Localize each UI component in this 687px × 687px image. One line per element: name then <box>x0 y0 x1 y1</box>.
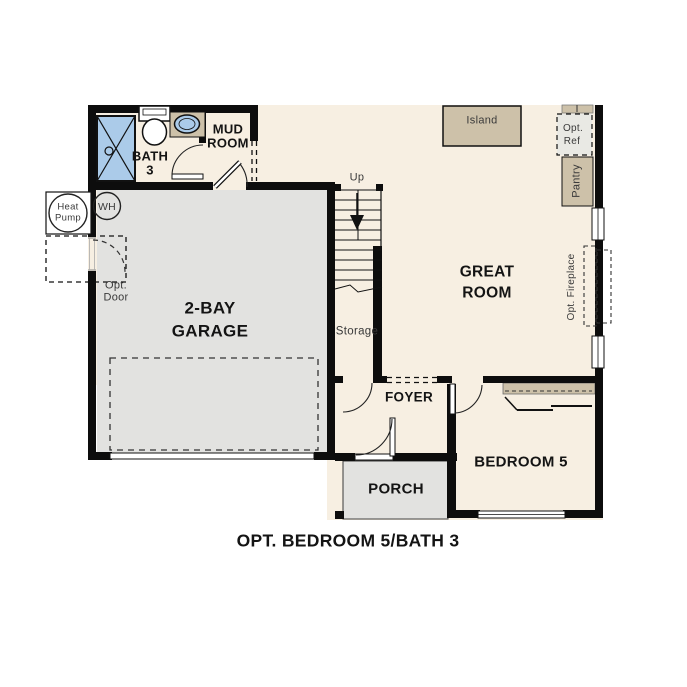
opt-fireplace-label: Opt. Fireplace <box>567 253 577 320</box>
wall-porch-corner <box>335 511 344 519</box>
wall-garage-bottom-left <box>88 452 112 460</box>
wall-storage-right <box>373 246 382 376</box>
wall-mudroom-right <box>250 105 258 141</box>
wall-garage-right <box>327 190 335 382</box>
stairs-up-label: Up <box>350 173 365 184</box>
wall-greatroom-bottom <box>483 376 603 383</box>
wall-foyer-bottom-left <box>335 453 355 461</box>
bedroom5-label: BEDROOM 5 <box>474 455 568 470</box>
wall-jamb-storage-right <box>373 376 387 383</box>
front-door-leaf <box>390 418 395 456</box>
water-heater-label: WH <box>98 202 116 213</box>
opt-door-label-2: Door <box>103 293 128 304</box>
floor-plan-drawing <box>0 0 687 687</box>
wall-right-upper <box>595 105 603 210</box>
bath3-label: BATH <box>132 150 168 163</box>
garage-label-2: GARAGE <box>172 323 248 340</box>
porch-label: PORCH <box>368 482 424 497</box>
pantry-label: Pantry <box>572 164 583 198</box>
toilet-bowl <box>143 119 167 145</box>
mudroom-label-2: ROOM <box>207 137 249 150</box>
opt-door-label: Opt. <box>105 281 127 292</box>
storage-label: Storage <box>336 326 378 338</box>
mudroom-label: MUD <box>213 123 244 136</box>
heat-pump-label-2: Pump <box>55 213 81 223</box>
island-label: Island <box>466 116 497 127</box>
foyer-label: FOYER <box>385 390 433 404</box>
shower-drain-icon <box>105 147 113 155</box>
bath3-door-leaf <box>172 174 203 179</box>
wall-right-lower <box>595 368 603 518</box>
garage-door <box>110 453 314 459</box>
bedroom5-door-leaf <box>450 384 455 414</box>
floor-plan: BATH 3 MUD ROOM Heat Pump WH Opt. Door 2… <box>0 0 687 687</box>
bath3-label-2: 3 <box>146 164 154 177</box>
great-room-label-2: ROOM <box>462 285 511 301</box>
plan-caption: OPT. BEDROOM 5/BATH 3 <box>237 532 460 550</box>
wall-bedroom-bottom-left <box>447 510 480 518</box>
heat-pump-label: Heat <box>57 202 78 212</box>
wall-jamb-storage-left <box>335 376 343 383</box>
opt-ref-label-2: Ref <box>564 137 580 147</box>
opt-ref-label: Opt. <box>563 124 583 134</box>
garage-label: 2-BAY <box>185 300 236 317</box>
toilet-tank-lid <box>143 109 166 115</box>
wall-garage-top-right <box>246 182 335 190</box>
sink-fixture <box>175 115 200 133</box>
wall-garage-top-left <box>88 182 213 190</box>
opt-refrigerator <box>557 114 592 155</box>
wall-left-lower <box>88 271 96 460</box>
wall-foyer-left <box>327 382 335 460</box>
wall-foyer-bedroom-seg <box>437 376 452 383</box>
great-room-label: GREAT <box>460 264 515 280</box>
closet-shelf <box>503 383 595 394</box>
